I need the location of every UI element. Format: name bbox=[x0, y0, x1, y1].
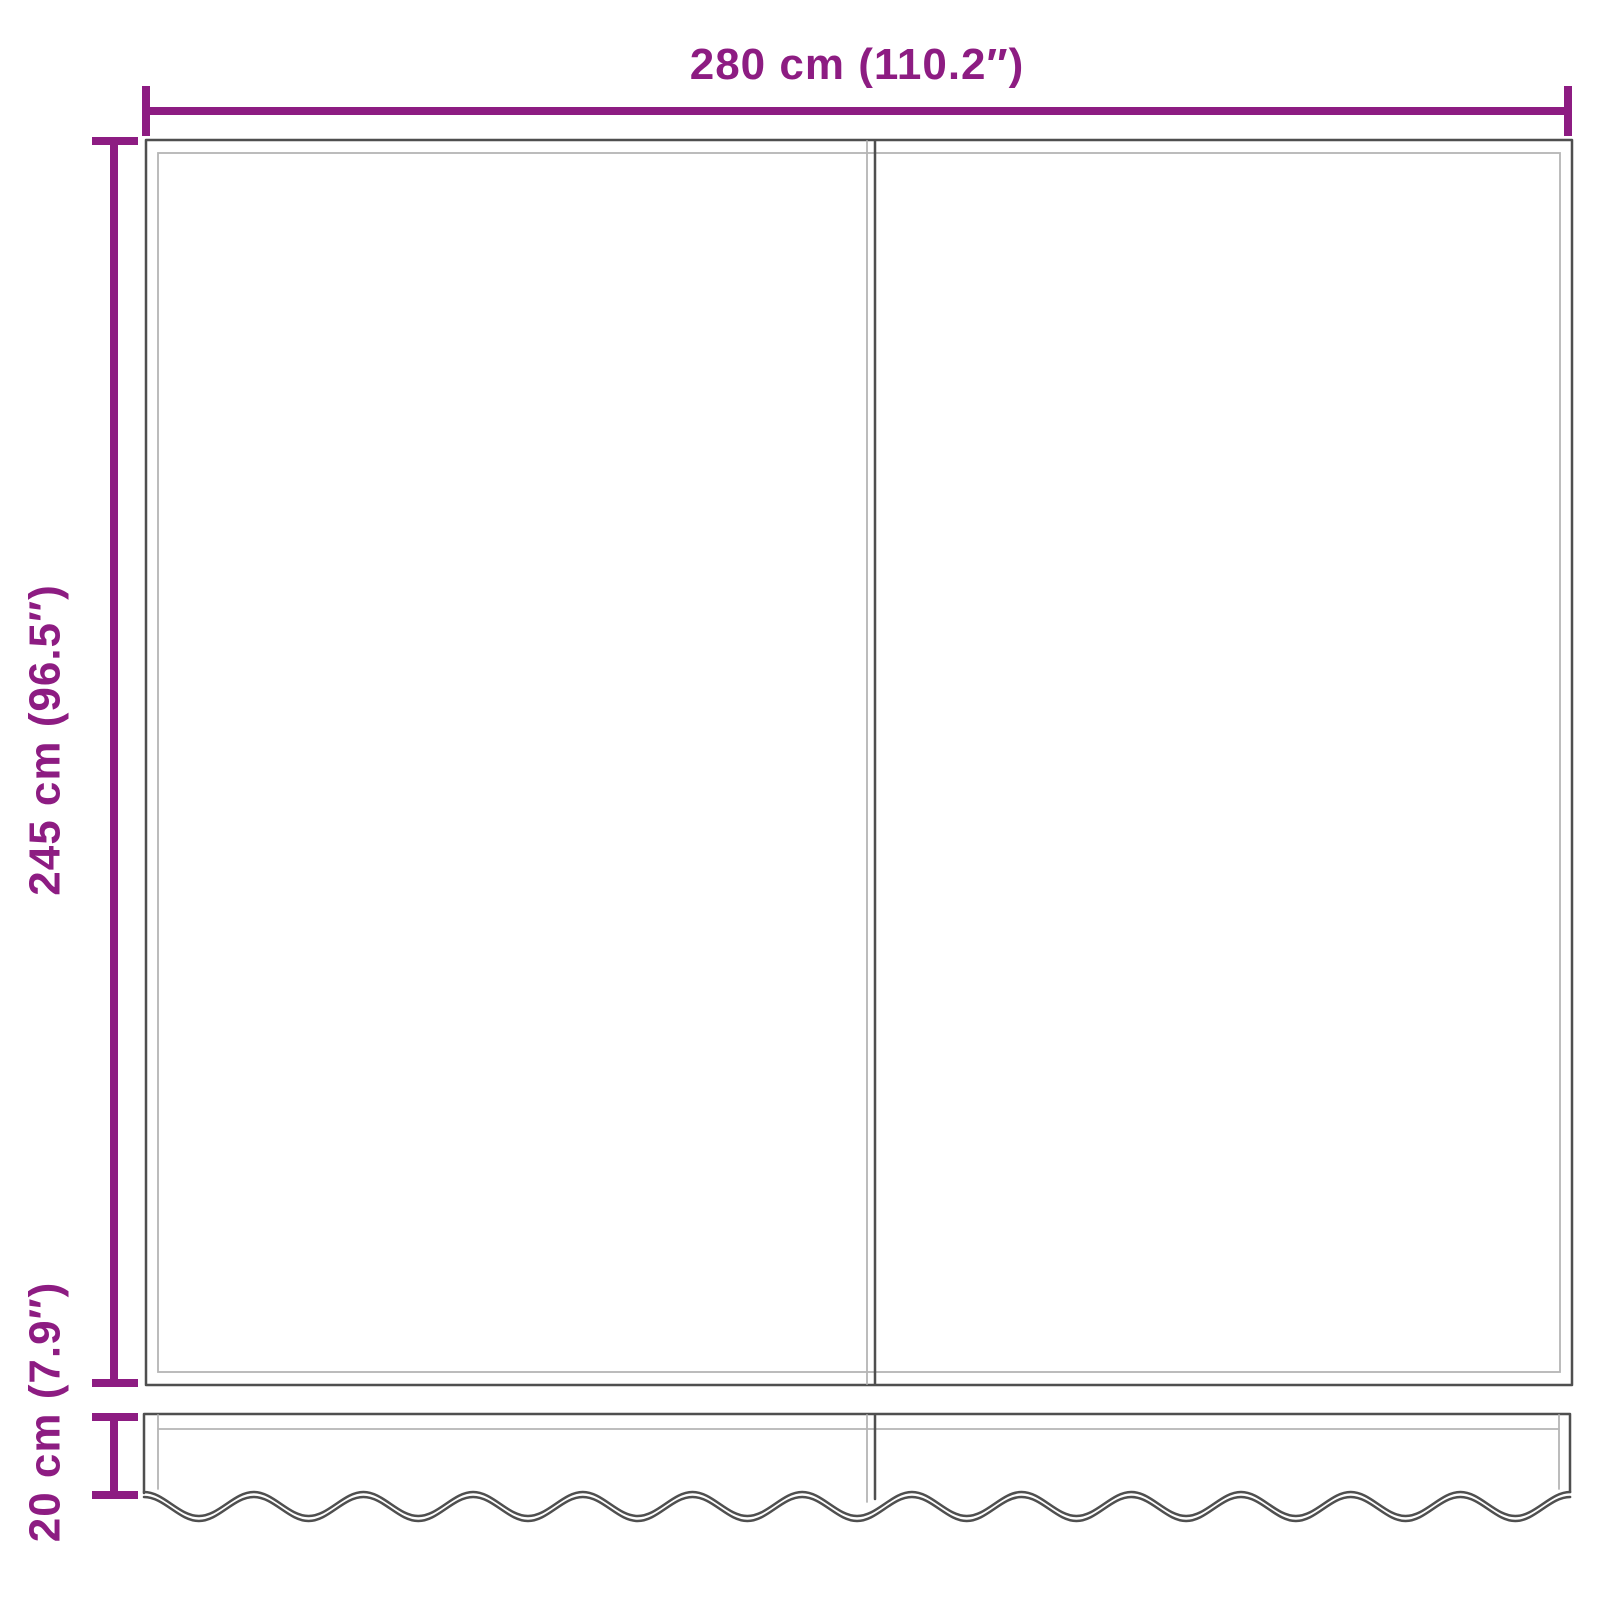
valance-height-dimension: 20 cm (7.9″) bbox=[21, 1282, 139, 1543]
valance bbox=[144, 1414, 1570, 1521]
height-dimension-label: 245 cm (96.5″) bbox=[21, 584, 70, 895]
fabric-panel bbox=[146, 140, 1572, 1385]
fabric-panel-outline bbox=[146, 140, 1572, 1385]
width-dimension-label: 280 cm (110.2″) bbox=[690, 40, 1025, 89]
width-dimension: 280 cm (110.2″) bbox=[146, 40, 1568, 136]
diagram-svg: 280 cm (110.2″) 245 cm (96.5″) 20 cm (7.… bbox=[0, 0, 1600, 1600]
height-dimension: 245 cm (96.5″) bbox=[21, 141, 139, 1383]
valance-height-dimension-label: 20 cm (7.9″) bbox=[21, 1282, 70, 1543]
valance-wave-lower bbox=[144, 1497, 1570, 1521]
fabric-panel-seam-inset bbox=[158, 153, 1560, 1372]
dimension-diagram: 280 cm (110.2″) 245 cm (96.5″) 20 cm (7.… bbox=[0, 0, 1600, 1600]
valance-outline bbox=[144, 1414, 1570, 1493]
valance-wave-upper bbox=[144, 1492, 1570, 1516]
